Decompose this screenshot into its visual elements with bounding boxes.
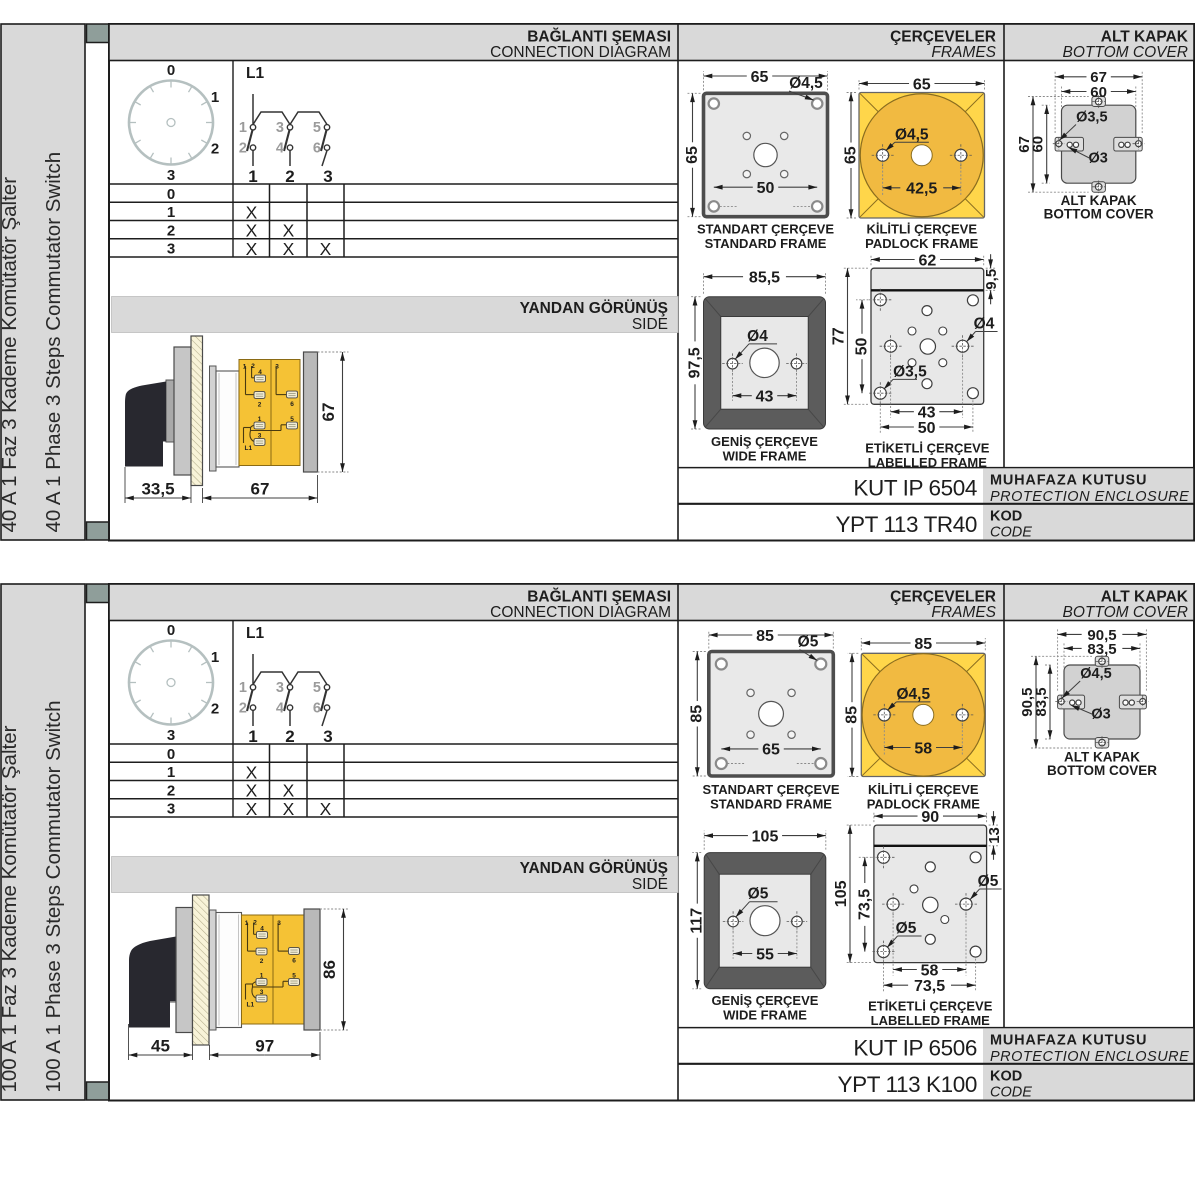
svg-text:CODE: CODE xyxy=(990,1085,1032,1101)
svg-text:2: 2 xyxy=(260,958,264,965)
svg-text:2: 2 xyxy=(258,402,262,409)
svg-text:6: 6 xyxy=(313,141,321,157)
svg-text:90: 90 xyxy=(921,809,939,826)
svg-text:67: 67 xyxy=(319,403,338,422)
svg-text:2: 2 xyxy=(211,701,219,718)
svg-text:CONNECTION DIAGRAM: CONNECTION DIAGRAM xyxy=(490,604,671,621)
svg-text:Ø4,5: Ø4,5 xyxy=(789,75,823,92)
svg-text:KUT IP 6504: KUT IP 6504 xyxy=(853,476,977,501)
svg-text:3: 3 xyxy=(276,680,284,696)
svg-text:5: 5 xyxy=(290,416,294,423)
svg-text:BAĞLANTI ŞEMASI: BAĞLANTI ŞEMASI xyxy=(527,588,671,606)
svg-text:105: 105 xyxy=(752,828,779,845)
svg-text:WIDE FRAME: WIDE FRAME xyxy=(723,1007,807,1022)
svg-text:L1: L1 xyxy=(246,625,264,642)
svg-text:Ø4: Ø4 xyxy=(747,328,768,345)
svg-text:6: 6 xyxy=(313,701,321,717)
svg-text:5: 5 xyxy=(313,120,321,136)
svg-text:MUHAFAZA KUTUSU: MUHAFAZA KUTUSU xyxy=(990,473,1147,489)
svg-text:STANDARD FRAME: STANDARD FRAME xyxy=(710,796,832,811)
svg-text:9,5: 9,5 xyxy=(983,269,1000,290)
svg-text:100 A 1 Faz 3 Kademe Komütatör: 100 A 1 Faz 3 Kademe Komütatör Şalter xyxy=(0,725,21,1092)
svg-text:GENİŞ ÇERÇEVE: GENİŞ ÇERÇEVE xyxy=(711,434,818,449)
svg-text:Ø5: Ø5 xyxy=(748,886,769,903)
svg-text:65: 65 xyxy=(913,76,931,93)
svg-text:42,5: 42,5 xyxy=(906,181,937,198)
svg-text:X: X xyxy=(246,799,258,819)
svg-text:1: 1 xyxy=(258,416,262,423)
svg-text:PADLOCK FRAME: PADLOCK FRAME xyxy=(865,236,978,251)
svg-text:FRAMES: FRAMES xyxy=(931,604,996,621)
svg-text:0: 0 xyxy=(167,746,175,763)
svg-text:BOTTOM COVER: BOTTOM COVER xyxy=(1063,44,1188,61)
svg-text:YPT 113 K100: YPT 113 K100 xyxy=(838,1072,977,1097)
svg-text:Ø5: Ø5 xyxy=(798,634,819,651)
svg-text:ALT KAPAK: ALT KAPAK xyxy=(1101,29,1189,46)
svg-text:58: 58 xyxy=(914,740,932,757)
svg-text:1: 1 xyxy=(248,727,257,746)
svg-text:Ø5: Ø5 xyxy=(978,873,999,890)
svg-text:62: 62 xyxy=(918,252,936,269)
svg-text:2: 2 xyxy=(239,141,247,157)
svg-text:Ø4,5: Ø4,5 xyxy=(895,126,929,143)
svg-text:40 A 1 Phase 3 Steps Commutato: 40 A 1 Phase 3 Steps Commutator Switch xyxy=(42,152,65,533)
svg-text:ETİKETLİ ÇERÇEVE: ETİKETLİ ÇERÇEVE xyxy=(868,998,993,1013)
svg-text:3: 3 xyxy=(277,920,281,927)
svg-text:KİLİTLİ ÇERÇEVE: KİLİTLİ ÇERÇEVE xyxy=(868,782,979,797)
svg-text:X: X xyxy=(320,239,332,259)
svg-text:2: 2 xyxy=(239,701,247,717)
svg-text:Ø5: Ø5 xyxy=(896,920,917,937)
svg-text:13: 13 xyxy=(986,827,1003,844)
svg-text:67: 67 xyxy=(251,480,270,499)
svg-text:X: X xyxy=(283,221,295,241)
svg-text:LABELLED FRAME: LABELLED FRAME xyxy=(871,1013,990,1028)
svg-text:KUT IP 6506: KUT IP 6506 xyxy=(853,1036,977,1061)
svg-text:0: 0 xyxy=(167,186,175,203)
svg-text:FRAMES: FRAMES xyxy=(931,44,996,61)
svg-text:60: 60 xyxy=(1090,84,1107,101)
svg-text:ETİKETLİ ÇERÇEVE: ETİKETLİ ÇERÇEVE xyxy=(865,440,990,455)
svg-text:Ø3: Ø3 xyxy=(1091,707,1110,723)
svg-text:0: 0 xyxy=(167,622,175,639)
svg-text:3: 3 xyxy=(260,989,264,996)
svg-text:33,5: 33,5 xyxy=(141,480,174,499)
svg-text:2: 2 xyxy=(167,222,175,239)
svg-text:ÇERÇEVELER: ÇERÇEVELER xyxy=(890,589,996,606)
svg-text:2: 2 xyxy=(251,363,255,370)
svg-text:2: 2 xyxy=(211,141,219,158)
svg-text:0: 0 xyxy=(167,62,175,79)
svg-text:43: 43 xyxy=(756,388,774,405)
svg-text:2: 2 xyxy=(285,727,294,746)
svg-text:Ø3,5: Ø3,5 xyxy=(893,363,927,380)
svg-text:YANDAN GÖRÜNÜŞ: YANDAN GÖRÜNÜŞ xyxy=(520,860,668,877)
svg-text:60: 60 xyxy=(1030,136,1047,153)
svg-text:X: X xyxy=(283,781,295,801)
svg-text:3: 3 xyxy=(276,120,284,136)
svg-text:Ø3: Ø3 xyxy=(1089,151,1108,167)
svg-text:KOD: KOD xyxy=(990,1069,1022,1085)
svg-text:SIDE: SIDE xyxy=(632,876,668,893)
svg-text:85: 85 xyxy=(756,628,774,645)
svg-text:58: 58 xyxy=(921,962,939,979)
svg-text:50: 50 xyxy=(918,420,936,437)
svg-text:BAĞLANTI ŞEMASI: BAĞLANTI ŞEMASI xyxy=(527,28,671,46)
svg-text:117: 117 xyxy=(689,908,706,934)
svg-text:KİLİTLİ ÇERÇEVE: KİLİTLİ ÇERÇEVE xyxy=(866,222,977,237)
svg-text:4: 4 xyxy=(276,701,284,717)
svg-text:73,5: 73,5 xyxy=(856,889,873,920)
svg-text:85: 85 xyxy=(689,705,706,723)
svg-text:L1: L1 xyxy=(245,445,253,452)
svg-text:1: 1 xyxy=(239,680,247,696)
svg-text:4: 4 xyxy=(276,141,284,157)
svg-text:CONNECTION DIAGRAM: CONNECTION DIAGRAM xyxy=(490,44,671,61)
svg-text:X: X xyxy=(246,221,258,241)
svg-text:4: 4 xyxy=(258,369,262,376)
svg-text:65: 65 xyxy=(762,742,780,759)
svg-text:97: 97 xyxy=(255,1037,274,1056)
svg-text:105: 105 xyxy=(833,880,850,907)
svg-text:CODE: CODE xyxy=(990,525,1032,541)
svg-text:2: 2 xyxy=(285,167,294,186)
svg-text:50: 50 xyxy=(757,180,775,197)
svg-text:85: 85 xyxy=(843,706,860,724)
svg-text:WIDE FRAME: WIDE FRAME xyxy=(723,449,807,464)
svg-text:5: 5 xyxy=(313,680,321,696)
svg-text:85: 85 xyxy=(914,636,932,653)
svg-text:45: 45 xyxy=(151,1037,170,1056)
svg-text:1: 1 xyxy=(211,89,219,106)
svg-text:1: 1 xyxy=(245,920,249,927)
svg-text:ÇERÇEVELER: ÇERÇEVELER xyxy=(890,29,996,46)
svg-text:STANDARD FRAME: STANDARD FRAME xyxy=(705,236,827,251)
svg-text:X: X xyxy=(283,799,295,819)
svg-text:3: 3 xyxy=(275,364,279,371)
svg-text:50: 50 xyxy=(854,338,871,356)
svg-text:ALT KAPAK: ALT KAPAK xyxy=(1101,589,1189,606)
svg-text:1: 1 xyxy=(239,120,247,136)
svg-text:X: X xyxy=(246,239,258,259)
svg-text:1: 1 xyxy=(167,764,175,781)
svg-text:4: 4 xyxy=(260,926,264,933)
svg-text:BOTTOM COVER: BOTTOM COVER xyxy=(1063,604,1188,621)
svg-text:X: X xyxy=(246,202,258,222)
svg-text:PROTECTION ENCLOSURE: PROTECTION ENCLOSURE xyxy=(990,489,1189,505)
svg-text:BOTTOM COVER: BOTTOM COVER xyxy=(1044,207,1154,222)
svg-text:65: 65 xyxy=(842,146,859,164)
svg-text:X: X xyxy=(246,781,258,801)
svg-text:6: 6 xyxy=(292,958,296,965)
svg-text:STANDART ÇERÇEVE: STANDART ÇERÇEVE xyxy=(697,222,834,237)
svg-text:3: 3 xyxy=(258,433,262,440)
svg-text:100 A 1 Phase 3 Steps Commutat: 100 A 1 Phase 3 Steps Commutator Switch xyxy=(42,701,65,1093)
svg-text:3: 3 xyxy=(167,727,175,744)
svg-text:L1: L1 xyxy=(246,65,264,82)
svg-text:PROTECTION ENCLOSURE: PROTECTION ENCLOSURE xyxy=(990,1049,1189,1065)
svg-text:YPT 113 TR40: YPT 113 TR40 xyxy=(835,512,977,537)
svg-text:1: 1 xyxy=(211,649,219,666)
svg-text:97,5: 97,5 xyxy=(686,347,703,378)
svg-text:BOTTOM COVER: BOTTOM COVER xyxy=(1047,763,1157,778)
svg-text:83,5: 83,5 xyxy=(1033,687,1050,716)
svg-text:Ø4,5: Ø4,5 xyxy=(1080,666,1111,682)
svg-text:YANDAN GÖRÜNÜŞ: YANDAN GÖRÜNÜŞ xyxy=(520,300,668,317)
svg-text:Ø3,5: Ø3,5 xyxy=(1076,110,1107,126)
svg-text:5: 5 xyxy=(292,973,296,980)
svg-text:1: 1 xyxy=(248,167,257,186)
svg-text:GENİŞ ÇERÇEVE: GENİŞ ÇERÇEVE xyxy=(712,993,819,1008)
svg-text:X: X xyxy=(283,239,295,259)
svg-text:2: 2 xyxy=(253,920,257,927)
svg-text:77: 77 xyxy=(831,327,848,345)
svg-text:STANDART ÇERÇEVE: STANDART ÇERÇEVE xyxy=(703,782,840,797)
svg-text:6: 6 xyxy=(290,401,294,408)
svg-text:3: 3 xyxy=(323,727,332,746)
svg-text:Ø4,5: Ø4,5 xyxy=(896,686,930,703)
svg-text:MUHAFAZA KUTUSU: MUHAFAZA KUTUSU xyxy=(990,1033,1147,1049)
svg-text:Ø4: Ø4 xyxy=(974,316,995,333)
svg-text:73,5: 73,5 xyxy=(914,978,945,995)
svg-text:1: 1 xyxy=(167,204,175,221)
svg-text:3: 3 xyxy=(323,167,332,186)
svg-text:3: 3 xyxy=(167,801,175,818)
svg-text:L1: L1 xyxy=(247,1002,255,1009)
svg-text:1: 1 xyxy=(260,973,264,980)
svg-text:86: 86 xyxy=(320,960,339,979)
svg-text:65: 65 xyxy=(684,146,701,164)
svg-text:65: 65 xyxy=(751,69,769,86)
svg-text:83,5: 83,5 xyxy=(1087,641,1116,658)
svg-text:X: X xyxy=(320,799,332,819)
svg-text:3: 3 xyxy=(167,241,175,258)
svg-text:40 A 1 Faz 3 Kademe Komütatör: 40 A 1 Faz 3 Kademe Komütatör Şalter xyxy=(0,177,21,533)
svg-text:1: 1 xyxy=(243,364,247,371)
svg-text:55: 55 xyxy=(756,946,774,963)
svg-text:3: 3 xyxy=(167,167,175,184)
svg-text:85,5: 85,5 xyxy=(749,269,780,286)
svg-text:X: X xyxy=(246,762,258,782)
svg-text:SIDE: SIDE xyxy=(632,316,668,333)
svg-text:KOD: KOD xyxy=(990,509,1022,525)
svg-text:2: 2 xyxy=(167,782,175,799)
